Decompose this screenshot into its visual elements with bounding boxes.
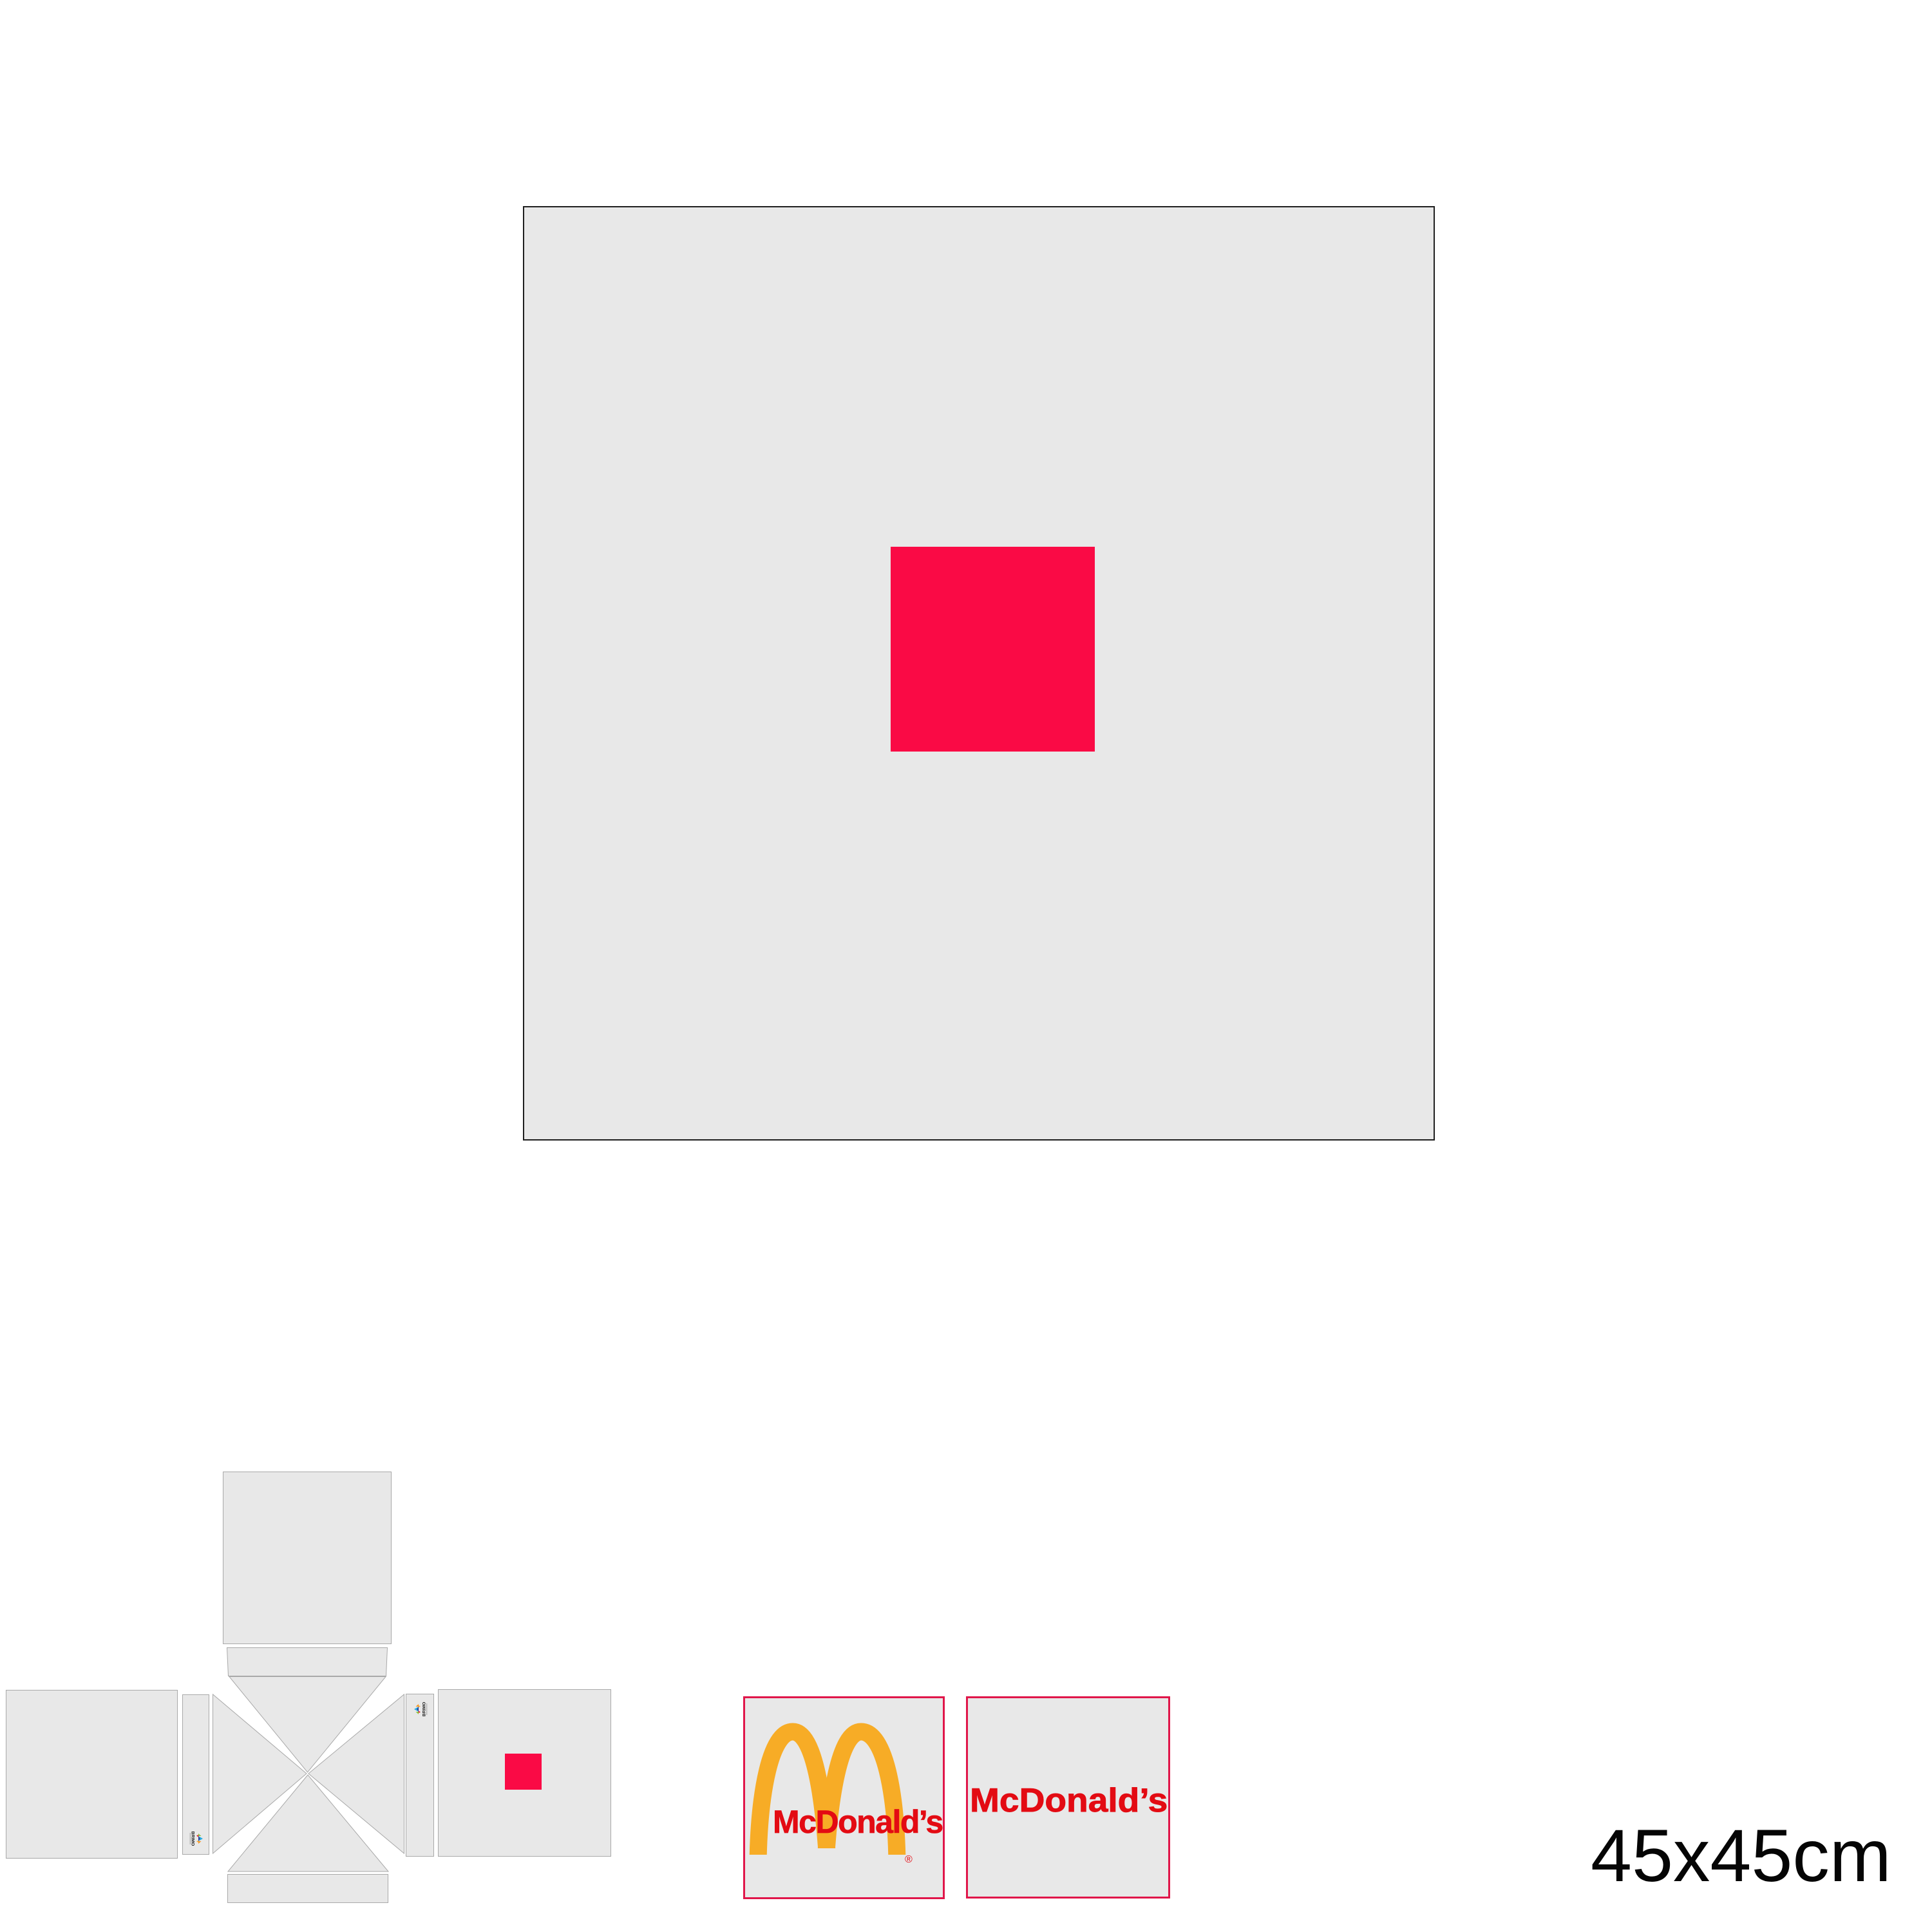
svg-text:BRIMO: BRIMO (422, 1702, 427, 1717)
svg-text:BRIMO: BRIMO (191, 1832, 195, 1846)
